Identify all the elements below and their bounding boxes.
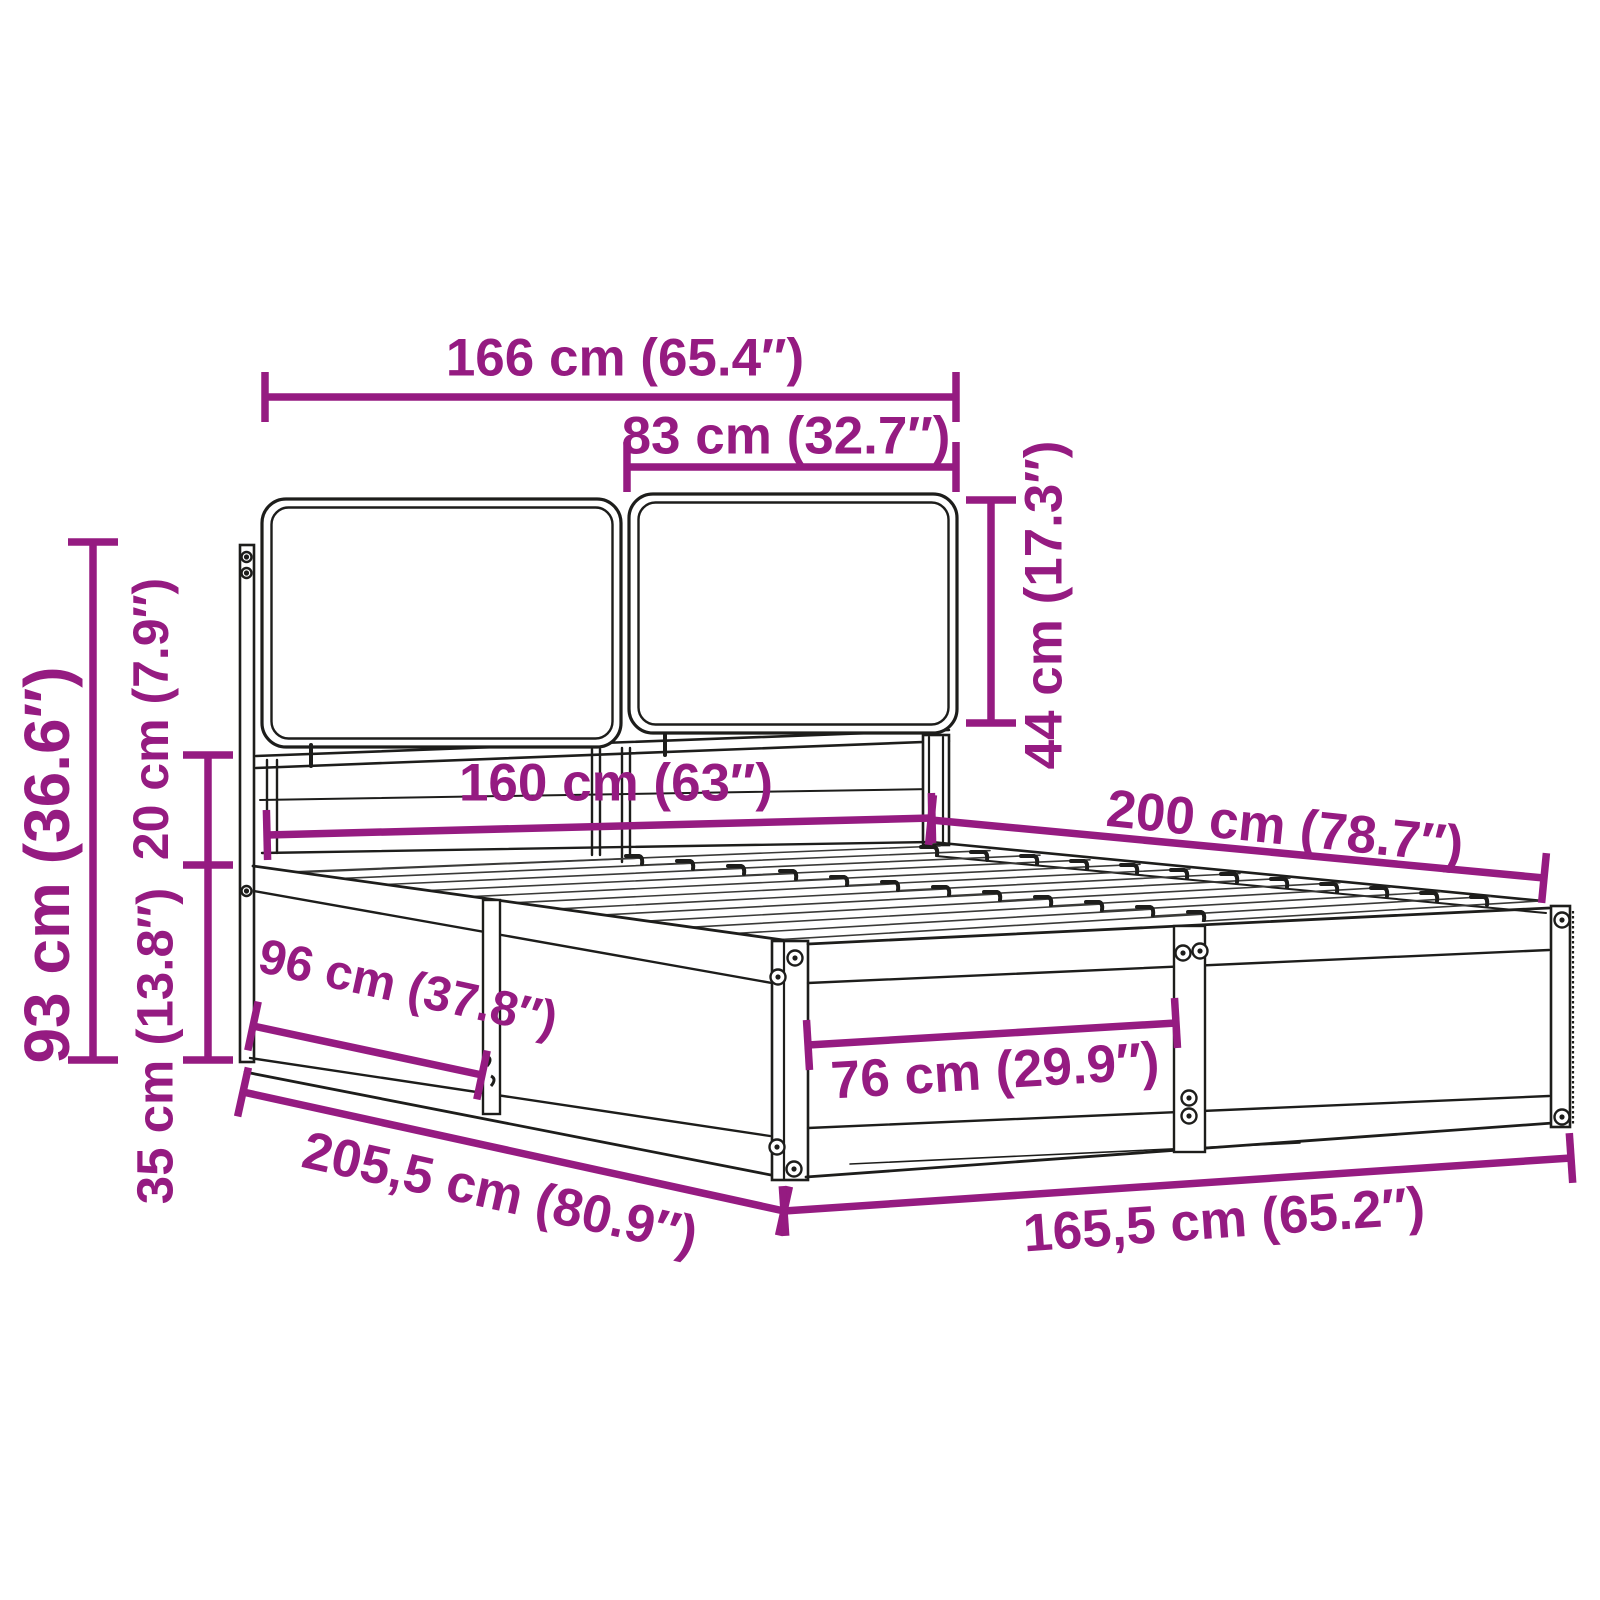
svg-text:93 cm (36.6″): 93 cm (36.6″) bbox=[11, 666, 83, 1063]
svg-text:20 cm (7.9″): 20 cm (7.9″) bbox=[123, 578, 179, 860]
svg-text:44 cm (17.3″): 44 cm (17.3″) bbox=[1015, 441, 1074, 770]
svg-text:83 cm (32.7″): 83 cm (32.7″) bbox=[622, 407, 951, 466]
svg-text:166 cm (65.4″): 166 cm (65.4″) bbox=[446, 329, 804, 388]
svg-text:160 cm (63″): 160 cm (63″) bbox=[459, 754, 773, 813]
svg-text:35 cm (13.8″): 35 cm (13.8″) bbox=[127, 888, 184, 1204]
